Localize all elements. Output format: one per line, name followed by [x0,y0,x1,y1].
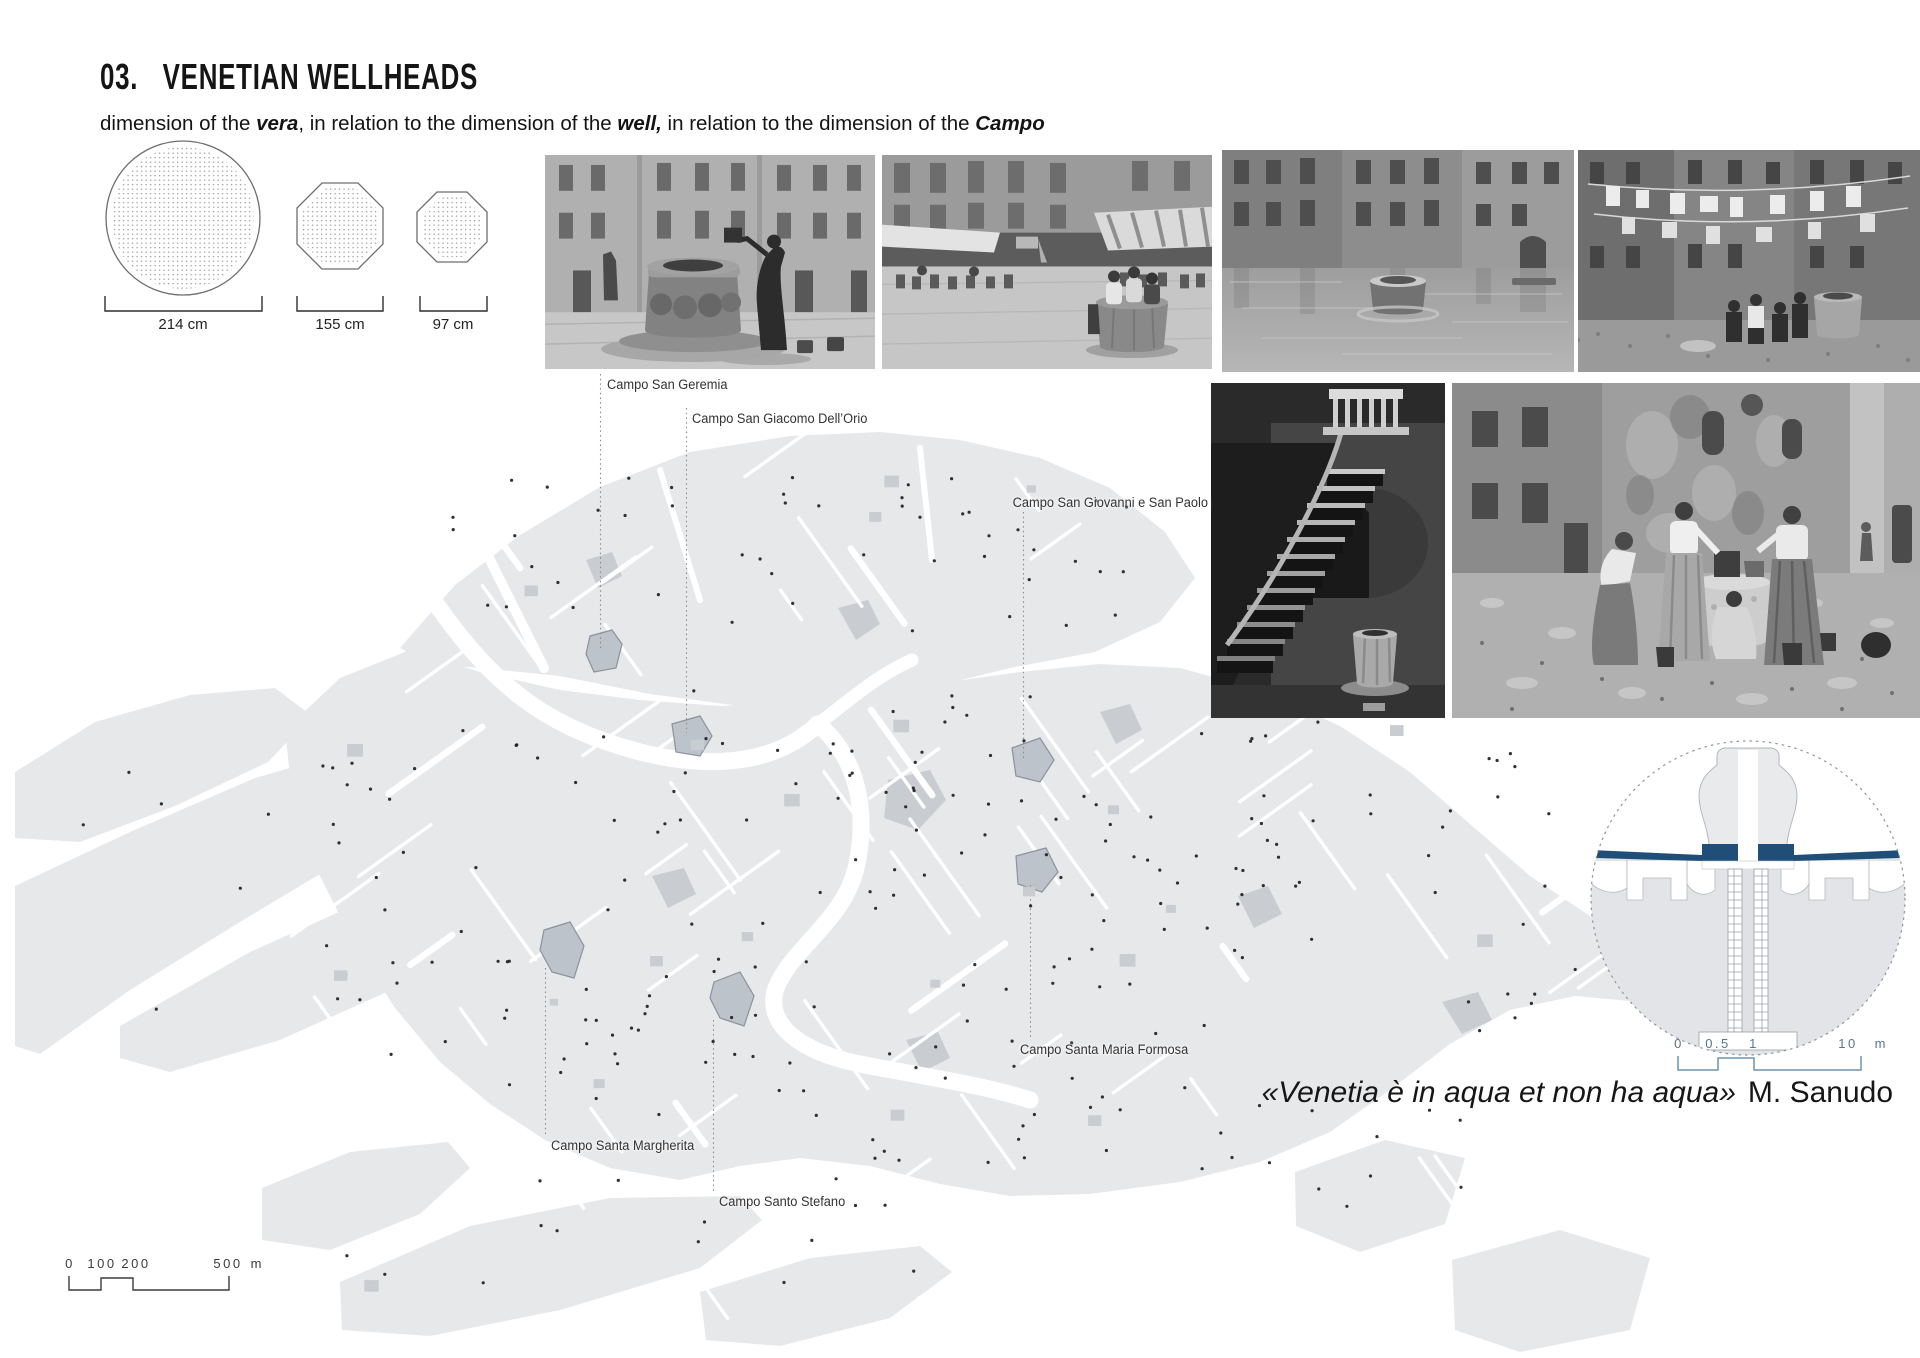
small-wellhead [1353,629,1397,688]
vera-dimension-214: 214 cm [140,316,226,333]
washtub [1680,340,1716,352]
vera-dimension-97: 97 cm [410,316,496,333]
title-text: VENETIAN WELLHEADS [163,56,478,97]
sanudo-quote: «Venetia è in aqua et non ha aqua»M. San… [1262,1076,1893,1110]
dimension-bracket [420,296,487,311]
tick-unit: m [1875,1036,1886,1051]
vera-size-diagrams [100,134,500,318]
subtitle: dimension of the vera, in relation to th… [100,112,1045,136]
tick-100: 100 [87,1256,116,1271]
subtitle-em-vera: vera [256,112,298,135]
kettle [1861,632,1891,658]
well-section-detail [1587,732,1909,1072]
vera-small-octagon-diagram [417,192,487,311]
tick-unit: m [251,1256,262,1271]
tick-0: 0 [1674,1036,1684,1051]
dimension-bracket [297,296,383,311]
scalebar-line [69,1276,229,1290]
label-campo-san-geremia: Campo San Geremia [607,377,727,392]
photo-courtyard-laundry [1578,150,1920,372]
map-scalebar: 0 100 200 500 m [60,1254,320,1298]
label-campo-san-giovanni: Campo San Giovanni e San Paolo [952,495,1209,510]
label-campo-santa-maria-formosa: Campo Santa Maria Formosa [1020,1042,1188,1057]
brick-wall-right [1754,869,1768,1032]
photo-flooded-campo [1222,150,1574,372]
dimension-bracket [105,296,262,311]
floor-plaque [1363,703,1385,711]
tick-200: 200 [121,1256,150,1271]
subtitle-em-campo: Campo [975,112,1044,135]
background-figure [1860,533,1873,561]
subtitle-text: dimension of the [100,112,256,135]
brick-wall-left [1728,869,1742,1032]
detail-scalebar: 0 0.5 1 10 m [1670,1034,1920,1078]
photo-campo-san-geremia [545,155,875,369]
photo-campo-san-giacomo [882,155,1212,369]
tick-500: 500 [213,1256,242,1271]
vera-dimension-155: 155 cm [297,316,383,333]
vera-octagon-diagram [297,183,383,311]
scalebar-line [1678,1056,1861,1070]
tick-0: 0 [65,1256,75,1271]
quote-author: M. Sanudo [1748,1076,1893,1109]
quote-text: «Venetia è in aqua et non ha aqua» [1262,1076,1736,1109]
campo-san-geremia-area [586,630,622,672]
subtitle-text: , in relation to the dimension of the [298,112,617,135]
tick-1: 1 [1749,1036,1759,1051]
photo-staircase-wellhead [1211,383,1445,718]
subtitle-text: in relation to the dimension of the [662,112,975,135]
subtitle-em-well: well, [617,112,661,135]
round-window [1741,394,1763,416]
photo-women-at-wellhead [1452,383,1920,718]
vera-circle-diagram [105,141,262,311]
header: 03.VENETIAN WELLHEADS [100,56,625,98]
section-number: 03. [100,56,138,97]
floating-boat [1512,278,1556,285]
tick-10: 10 [1838,1036,1857,1051]
label-campo-santa-margherita: Campo Santa Margherita [551,1138,694,1153]
tick-05: 0.5 [1705,1036,1731,1051]
label-campo-san-giacomo: Campo San Giacomo Dell’Orio [692,411,867,426]
courtyard-wellhead [1814,292,1862,339]
label-campo-santo-stefano: Campo Santo Stefano [719,1194,845,1209]
page-title: 03.VENETIAN WELLHEADS [100,56,478,98]
